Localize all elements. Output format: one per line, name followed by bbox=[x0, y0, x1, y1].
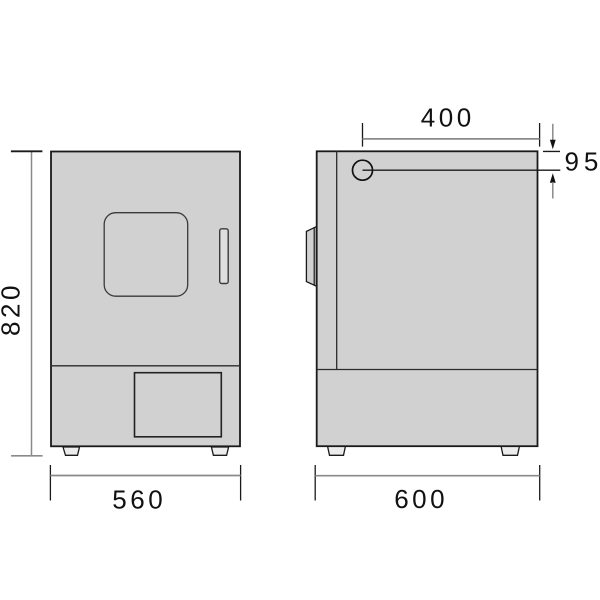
svg-text:600: 600 bbox=[394, 484, 448, 514]
svg-text:95: 95 bbox=[564, 147, 600, 177]
svg-text:400: 400 bbox=[421, 103, 475, 133]
svg-text:560: 560 bbox=[112, 485, 166, 515]
svg-text:820: 820 bbox=[0, 282, 26, 336]
